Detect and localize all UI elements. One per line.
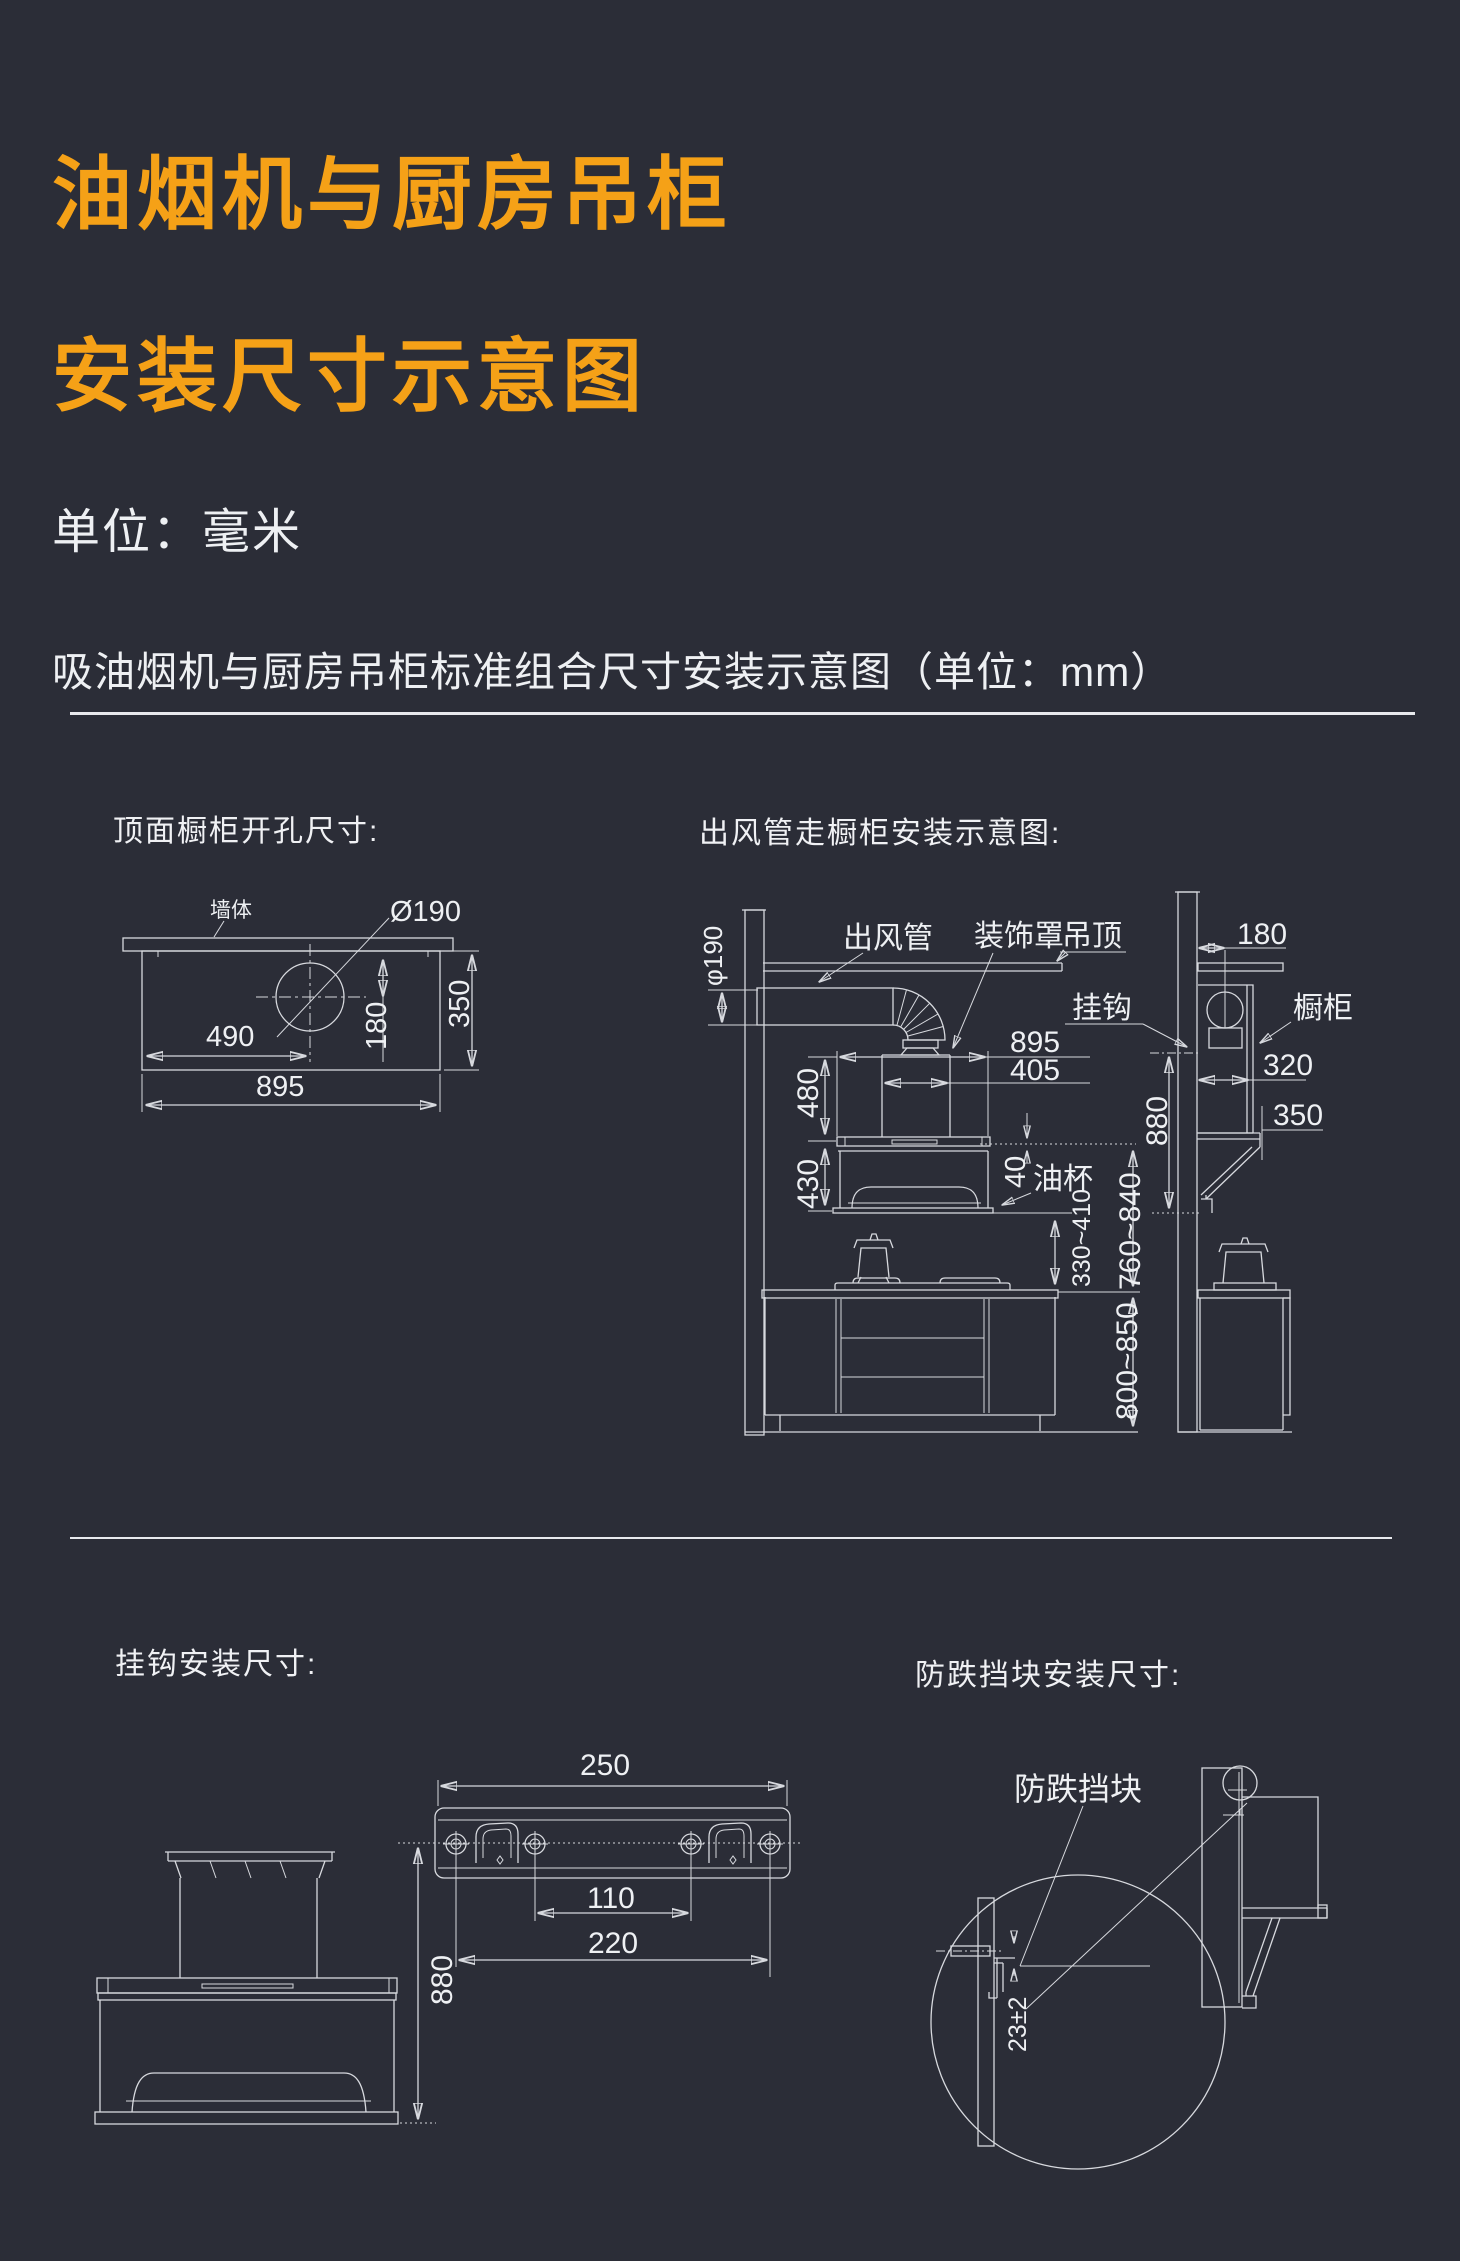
dim-330-410: 330~410	[1068, 1189, 1096, 1287]
dim-880-side: 880	[1141, 1096, 1174, 1146]
dim-40: 40	[1000, 1156, 1032, 1188]
dim-220: 220	[588, 1927, 638, 1960]
dim-23: 23±2	[1004, 1997, 1032, 2052]
dim-180-wall: 180	[1237, 918, 1287, 951]
dim-430: 430	[792, 1159, 825, 1209]
cutout-diagram: 墙体 Ø190 180 350 490 895	[123, 896, 479, 1112]
ceiling-label: 吊顶	[1062, 920, 1122, 953]
block-label: 防跌挡块	[1014, 1771, 1142, 1807]
block-diagram: 防跌挡块 23±2	[931, 1766, 1327, 2169]
cover-label: 装饰罩	[974, 920, 1064, 953]
dim-180: 180	[361, 1002, 393, 1050]
hook-label: 挂钩	[1072, 992, 1132, 1025]
dim-350-depth: 350	[1273, 1099, 1323, 1132]
dim-480: 480	[792, 1068, 825, 1118]
dim-800-850: 800~850	[1111, 1302, 1144, 1420]
hook-diagram: 250 110 220 880	[95, 1749, 802, 2124]
dim-490: 490	[206, 1021, 254, 1053]
duct-front-view: 吊顶 出风管 装饰罩 φ190 40 油杯 895 405 480 430 33…	[698, 910, 1200, 1435]
duct-diameter-label: φ190	[698, 926, 728, 986]
cabinet-label: 橱柜	[1293, 992, 1353, 1025]
duct-side-view: 180 挂钩 橱柜 320 350	[1065, 892, 1353, 1432]
hook-holes	[443, 1831, 783, 1857]
dim-110: 110	[587, 1882, 635, 1915]
wall-label: 墙体	[210, 899, 252, 922]
dim-880: 880	[426, 1955, 459, 2005]
hole-diameter-label: Ø190	[390, 896, 461, 928]
dim-320: 320	[1263, 1049, 1313, 1082]
dim-895: 895	[256, 1071, 304, 1103]
dim-350: 350	[444, 980, 476, 1028]
technical-drawing: 墙体 Ø190 180 350 490 895 吊顶 出风管 装饰罩 φ190 …	[0, 0, 1460, 2261]
duct-label: 出风管	[843, 922, 933, 955]
dim-250: 250	[580, 1749, 630, 1782]
dim-760-840: 760~840	[1114, 1172, 1147, 1290]
dim-405: 405	[1010, 1054, 1060, 1087]
